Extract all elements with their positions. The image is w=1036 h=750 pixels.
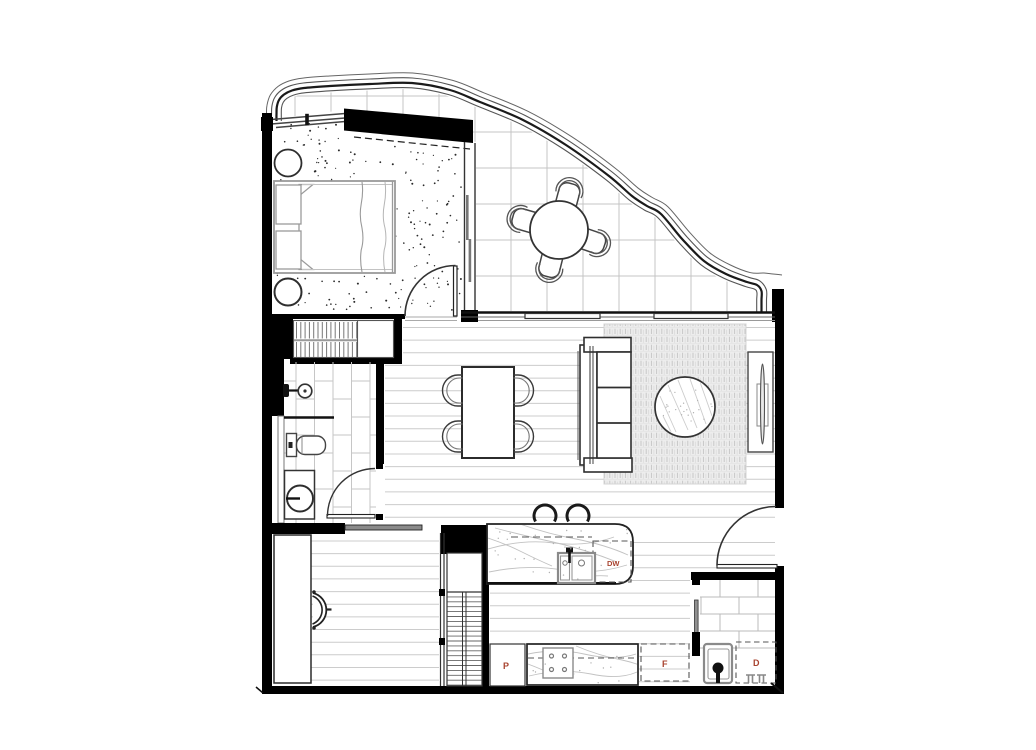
svg-text:D: D	[753, 658, 760, 668]
svg-text:P: P	[503, 661, 509, 671]
svg-text:DW: DW	[607, 559, 620, 568]
svg-text:F: F	[662, 659, 668, 669]
